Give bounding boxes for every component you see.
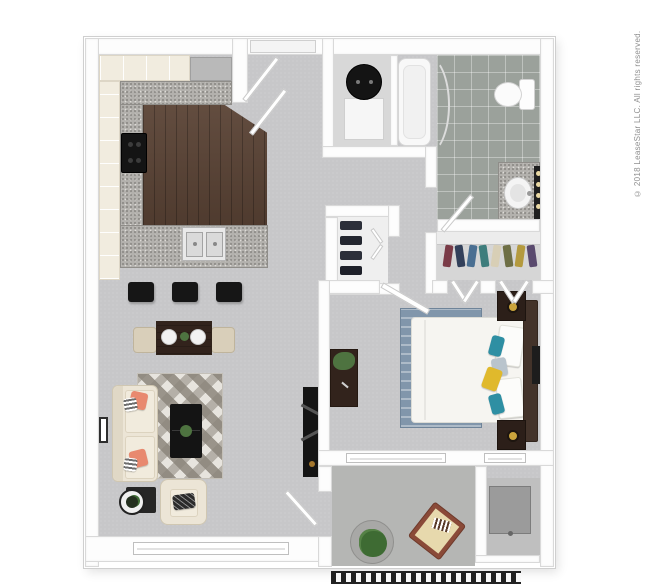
armchair-pillow [172, 493, 196, 511]
sink-bowl [510, 184, 526, 202]
bar-stool [172, 282, 198, 302]
refrigerator [190, 57, 232, 81]
closet-clothes [444, 245, 539, 271]
kitchen-upper-cabinets [99, 55, 190, 81]
bar-stool [128, 282, 154, 302]
wall-top [85, 38, 554, 55]
duvet-fold-line [424, 320, 426, 420]
floorplan-canvas: © 2018 LeaseStar LLC. All rights reserve… [0, 0, 650, 585]
storage-latch-icon [508, 531, 513, 536]
bedroom-window-small [484, 453, 526, 463]
wall-patio-left-lower [318, 536, 332, 567]
wall-under-tub [322, 146, 434, 158]
burner-icon [136, 158, 141, 163]
decor-gold-icon [309, 461, 315, 467]
wall-bedroom-top-c [480, 280, 496, 294]
dining-chair [211, 327, 235, 353]
entry-threshold [250, 40, 316, 53]
wall-laundry-tub-divider [390, 55, 398, 146]
sink-basin [206, 232, 223, 257]
linen-item [340, 251, 362, 260]
wall-storage-left [475, 466, 487, 563]
sink-basin [186, 232, 203, 257]
water-heater-base [344, 98, 384, 140]
wall-right [540, 38, 554, 567]
clothes-item [479, 245, 490, 268]
bar-stools [128, 282, 262, 304]
patio-plant-icon [359, 529, 387, 557]
linen-item [340, 236, 362, 245]
clothes-item [515, 245, 526, 268]
wall-linen-right-stub [388, 205, 400, 237]
coffee-table [170, 404, 202, 458]
patio-railing [331, 571, 521, 584]
wall-laundry-left [322, 38, 334, 158]
burner-icon [128, 142, 133, 147]
dining-chair [133, 327, 157, 353]
heater-dot-icon [369, 80, 373, 84]
copyright-notice: © 2018 LeaseStar LLC. All rights reserve… [633, 8, 642, 198]
stove [121, 133, 147, 173]
table-centerpiece-plant [180, 332, 189, 341]
burner-icon [136, 142, 141, 147]
wall-bath-left [425, 146, 437, 188]
clothes-item [503, 245, 514, 268]
dresser [330, 349, 358, 407]
bar-stool [216, 282, 242, 302]
wall-storage-bottom [475, 555, 540, 563]
wall-bedroom-top-d [532, 280, 554, 294]
wall-patio-left [318, 466, 332, 492]
bedroom-window [346, 453, 446, 463]
sofa-pillow-striped [123, 457, 138, 472]
water-heater [346, 64, 382, 100]
wall-bedroom-top-a [322, 280, 380, 294]
plant-leaves-icon [126, 496, 138, 508]
clothes-item [455, 245, 466, 268]
sofa-back [113, 386, 123, 481]
kitchen-left-cabinets [99, 81, 120, 280]
faucet-icon [527, 191, 532, 196]
dining-plate [190, 329, 206, 345]
side-table-plant [119, 489, 145, 515]
kitchen-counter-top [120, 81, 232, 105]
storage-unit [489, 486, 531, 534]
armchair [160, 479, 207, 525]
clothes-item [443, 245, 454, 268]
shower-curtain-rod [404, 55, 450, 155]
wall-bedroom-left [318, 280, 330, 466]
clothes-item [491, 245, 502, 268]
living-room-window [133, 542, 289, 555]
dining-plate [161, 329, 177, 345]
linen-shelf-items [340, 221, 364, 281]
wall-art-frame [99, 417, 108, 443]
table-lamp-icon [507, 430, 519, 442]
clothes-item [467, 245, 478, 268]
kitchen-wood-floor [143, 105, 267, 225]
vanity-sink [504, 177, 532, 209]
faucet-icon [213, 242, 217, 246]
coffee-table-plant [180, 425, 192, 437]
dresser-decor-icon [341, 382, 348, 389]
walkin-closet-shelf [437, 232, 540, 245]
toilet-bowl [494, 82, 522, 107]
wall-left [85, 38, 99, 567]
linen-item [340, 221, 362, 230]
burner-icon [128, 158, 133, 163]
linen-item [340, 266, 362, 275]
sofa-pillow-striped [123, 397, 138, 412]
nightstand [497, 420, 526, 450]
faucet-icon [193, 242, 197, 246]
patio-plant-pot [350, 520, 394, 564]
kitchen-sink [182, 227, 226, 261]
clothes-item [527, 245, 538, 268]
wall-bedroom-top-b [432, 280, 448, 294]
dresser-plant-icon [333, 352, 355, 370]
bedroom-wall-tv [532, 346, 540, 384]
heater-dot-icon [356, 80, 360, 84]
